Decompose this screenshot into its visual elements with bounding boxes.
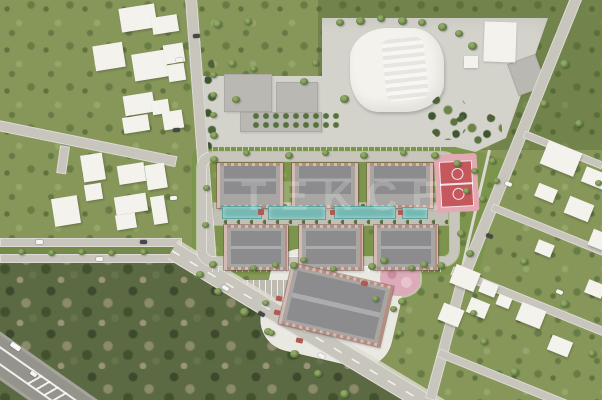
tree xyxy=(400,150,407,156)
car xyxy=(96,257,103,261)
car xyxy=(140,240,147,244)
plot-building xyxy=(144,163,168,191)
tree xyxy=(470,310,477,316)
tree xyxy=(372,296,379,302)
tree xyxy=(468,42,477,50)
roof-panel xyxy=(381,231,431,264)
watermark: TEKCE xyxy=(232,172,462,220)
tree xyxy=(244,18,252,25)
tree xyxy=(243,150,250,156)
plot-building xyxy=(115,213,137,231)
tree xyxy=(312,60,319,66)
car xyxy=(176,58,183,62)
car xyxy=(193,34,200,38)
tree xyxy=(340,95,349,103)
plot-building xyxy=(84,183,103,201)
tree xyxy=(377,15,385,22)
tree xyxy=(203,185,210,191)
parking-tree-row xyxy=(252,113,342,119)
tree xyxy=(214,288,222,295)
plaza-white-building xyxy=(464,56,478,68)
car xyxy=(170,196,177,200)
tree xyxy=(48,250,55,256)
parking-tree-row xyxy=(252,122,342,128)
tree xyxy=(380,257,388,264)
boulevard-median xyxy=(0,247,176,254)
tree xyxy=(78,249,85,255)
tree xyxy=(398,298,406,305)
tree xyxy=(431,152,439,159)
tree xyxy=(457,230,465,237)
tree xyxy=(438,23,447,31)
tree xyxy=(300,78,308,85)
tree xyxy=(420,261,428,268)
tree xyxy=(250,265,257,271)
tree xyxy=(290,350,299,358)
tree xyxy=(471,168,478,174)
plot-building xyxy=(80,152,106,182)
apartment-block xyxy=(299,225,363,270)
tree xyxy=(210,92,217,98)
site-render: TEKCE xyxy=(0,0,602,400)
tree xyxy=(408,265,415,271)
tree xyxy=(18,249,25,255)
tree xyxy=(340,390,349,398)
tree xyxy=(210,72,217,78)
tree xyxy=(209,261,217,268)
boulevard-south-lane xyxy=(0,254,180,263)
plot-building xyxy=(92,42,126,71)
tree xyxy=(314,370,322,377)
tree xyxy=(560,300,569,308)
tree xyxy=(588,350,596,357)
tree xyxy=(285,152,293,159)
tree xyxy=(196,271,204,278)
tree xyxy=(396,330,403,336)
tree xyxy=(595,180,602,186)
tree xyxy=(437,262,445,269)
plaza-building-roof xyxy=(224,74,272,112)
tree xyxy=(232,96,240,103)
tree xyxy=(463,188,470,194)
tree xyxy=(489,158,496,164)
car xyxy=(173,128,180,132)
tree xyxy=(210,112,217,118)
tree xyxy=(360,152,368,159)
tree xyxy=(108,250,115,256)
tree xyxy=(368,263,376,270)
roof-panel xyxy=(306,231,356,264)
tree xyxy=(228,60,236,67)
tree xyxy=(493,178,500,184)
tree xyxy=(213,20,222,28)
tree xyxy=(356,17,365,25)
tree xyxy=(510,368,519,376)
plaza-white-building xyxy=(483,21,516,62)
tree xyxy=(240,308,249,316)
car xyxy=(36,240,43,244)
tree xyxy=(390,306,397,312)
tree xyxy=(210,132,218,139)
red-feature xyxy=(276,295,283,301)
tree xyxy=(250,66,257,72)
tree xyxy=(262,300,269,306)
tree xyxy=(330,266,337,272)
tree xyxy=(336,19,344,26)
tree xyxy=(455,30,463,37)
tree xyxy=(453,160,461,167)
plaza-building-roof xyxy=(276,82,318,114)
tree xyxy=(466,250,474,257)
tree-grove xyxy=(452,112,502,148)
red-feature xyxy=(274,309,281,315)
tree xyxy=(479,196,486,202)
tree xyxy=(140,249,147,255)
tree xyxy=(540,100,548,107)
tree xyxy=(398,17,407,25)
tree xyxy=(272,262,279,268)
plot-building xyxy=(167,63,186,82)
tree xyxy=(210,156,218,163)
tree xyxy=(322,150,329,156)
roof-panel xyxy=(231,231,281,264)
tree xyxy=(202,222,209,228)
tree xyxy=(560,60,569,68)
tree xyxy=(418,19,426,26)
tree xyxy=(575,120,583,127)
skylight-roof xyxy=(381,36,429,102)
tree xyxy=(290,262,298,269)
tree xyxy=(300,257,307,263)
boulevard-north-lane xyxy=(0,238,182,247)
plot-building xyxy=(51,195,81,227)
tree xyxy=(480,338,488,345)
tree xyxy=(268,330,275,336)
tree xyxy=(520,258,528,265)
